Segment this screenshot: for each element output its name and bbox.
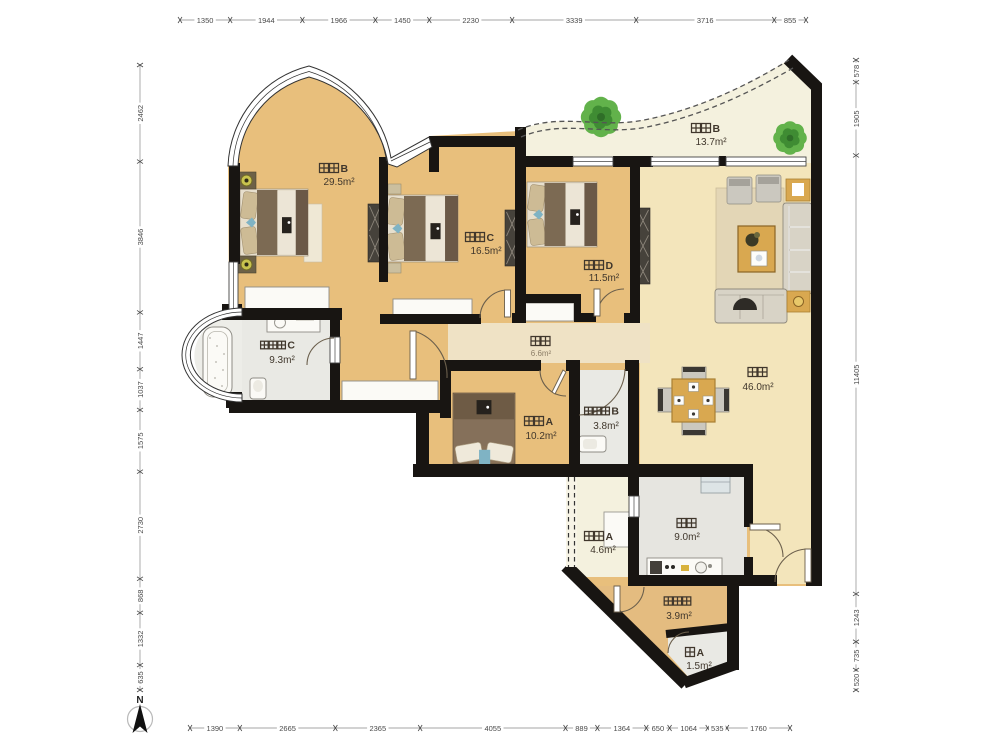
svg-text:4.6m²: 4.6m² [590, 545, 616, 556]
svg-text:3.8m²: 3.8m² [593, 421, 619, 432]
svg-text:535: 535 [711, 724, 724, 733]
svg-text:B: B [341, 163, 349, 175]
svg-text:11.5m²: 11.5m² [589, 273, 620, 284]
svg-text:650: 650 [652, 724, 665, 733]
svg-text:855: 855 [784, 16, 797, 25]
svg-text:1.5m²: 1.5m² [686, 661, 712, 672]
svg-text:3716: 3716 [697, 16, 714, 25]
svg-text:868: 868 [136, 590, 145, 603]
svg-text:16.5m²: 16.5m² [470, 246, 502, 257]
svg-text:578: 578 [852, 65, 861, 78]
svg-text:1364: 1364 [613, 724, 630, 733]
svg-text:1760: 1760 [750, 724, 767, 733]
svg-text:D: D [606, 260, 614, 272]
svg-text:1332: 1332 [136, 631, 145, 648]
svg-text:B: B [713, 123, 721, 135]
svg-text:889: 889 [575, 724, 588, 733]
svg-text:1037: 1037 [136, 381, 145, 398]
svg-text:2665: 2665 [279, 724, 296, 733]
svg-text:10.2m²: 10.2m² [525, 431, 557, 442]
svg-text:1575: 1575 [136, 432, 145, 449]
svg-text:735: 735 [852, 650, 861, 663]
svg-text:1450: 1450 [394, 16, 411, 25]
svg-text:C: C [487, 232, 495, 244]
svg-text:9.0m²: 9.0m² [674, 532, 700, 543]
svg-text:6.6m²: 6.6m² [531, 349, 552, 358]
svg-text:2365: 2365 [369, 724, 386, 733]
svg-text:2462: 2462 [136, 105, 145, 122]
svg-text:A: A [606, 531, 614, 543]
svg-text:13.7m²: 13.7m² [695, 137, 727, 148]
svg-text:635: 635 [136, 671, 145, 684]
svg-text:9.3m²: 9.3m² [269, 355, 295, 366]
svg-text:1064: 1064 [680, 724, 697, 733]
svg-text:2230: 2230 [462, 16, 479, 25]
svg-text:46.0m²: 46.0m² [742, 382, 774, 393]
svg-text:1243: 1243 [852, 610, 861, 627]
svg-text:1944: 1944 [258, 16, 275, 25]
svg-text:1447: 1447 [136, 332, 145, 349]
svg-text:3339: 3339 [566, 16, 583, 25]
svg-text:1390: 1390 [207, 724, 224, 733]
svg-text:3846: 3846 [136, 229, 145, 246]
svg-text:4055: 4055 [484, 724, 501, 733]
svg-text:11405: 11405 [852, 365, 861, 385]
svg-text:520: 520 [852, 674, 861, 687]
svg-text:3.9m²: 3.9m² [666, 611, 692, 622]
svg-text:29.5m²: 29.5m² [323, 177, 355, 188]
svg-text:C: C [287, 339, 295, 351]
svg-text:2730: 2730 [136, 517, 145, 534]
svg-text:1966: 1966 [331, 16, 348, 25]
svg-text:B: B [611, 405, 619, 417]
svg-text:A: A [546, 416, 554, 428]
svg-text:A: A [697, 647, 705, 659]
svg-text:1350: 1350 [197, 16, 214, 25]
svg-text:1905: 1905 [852, 111, 861, 128]
